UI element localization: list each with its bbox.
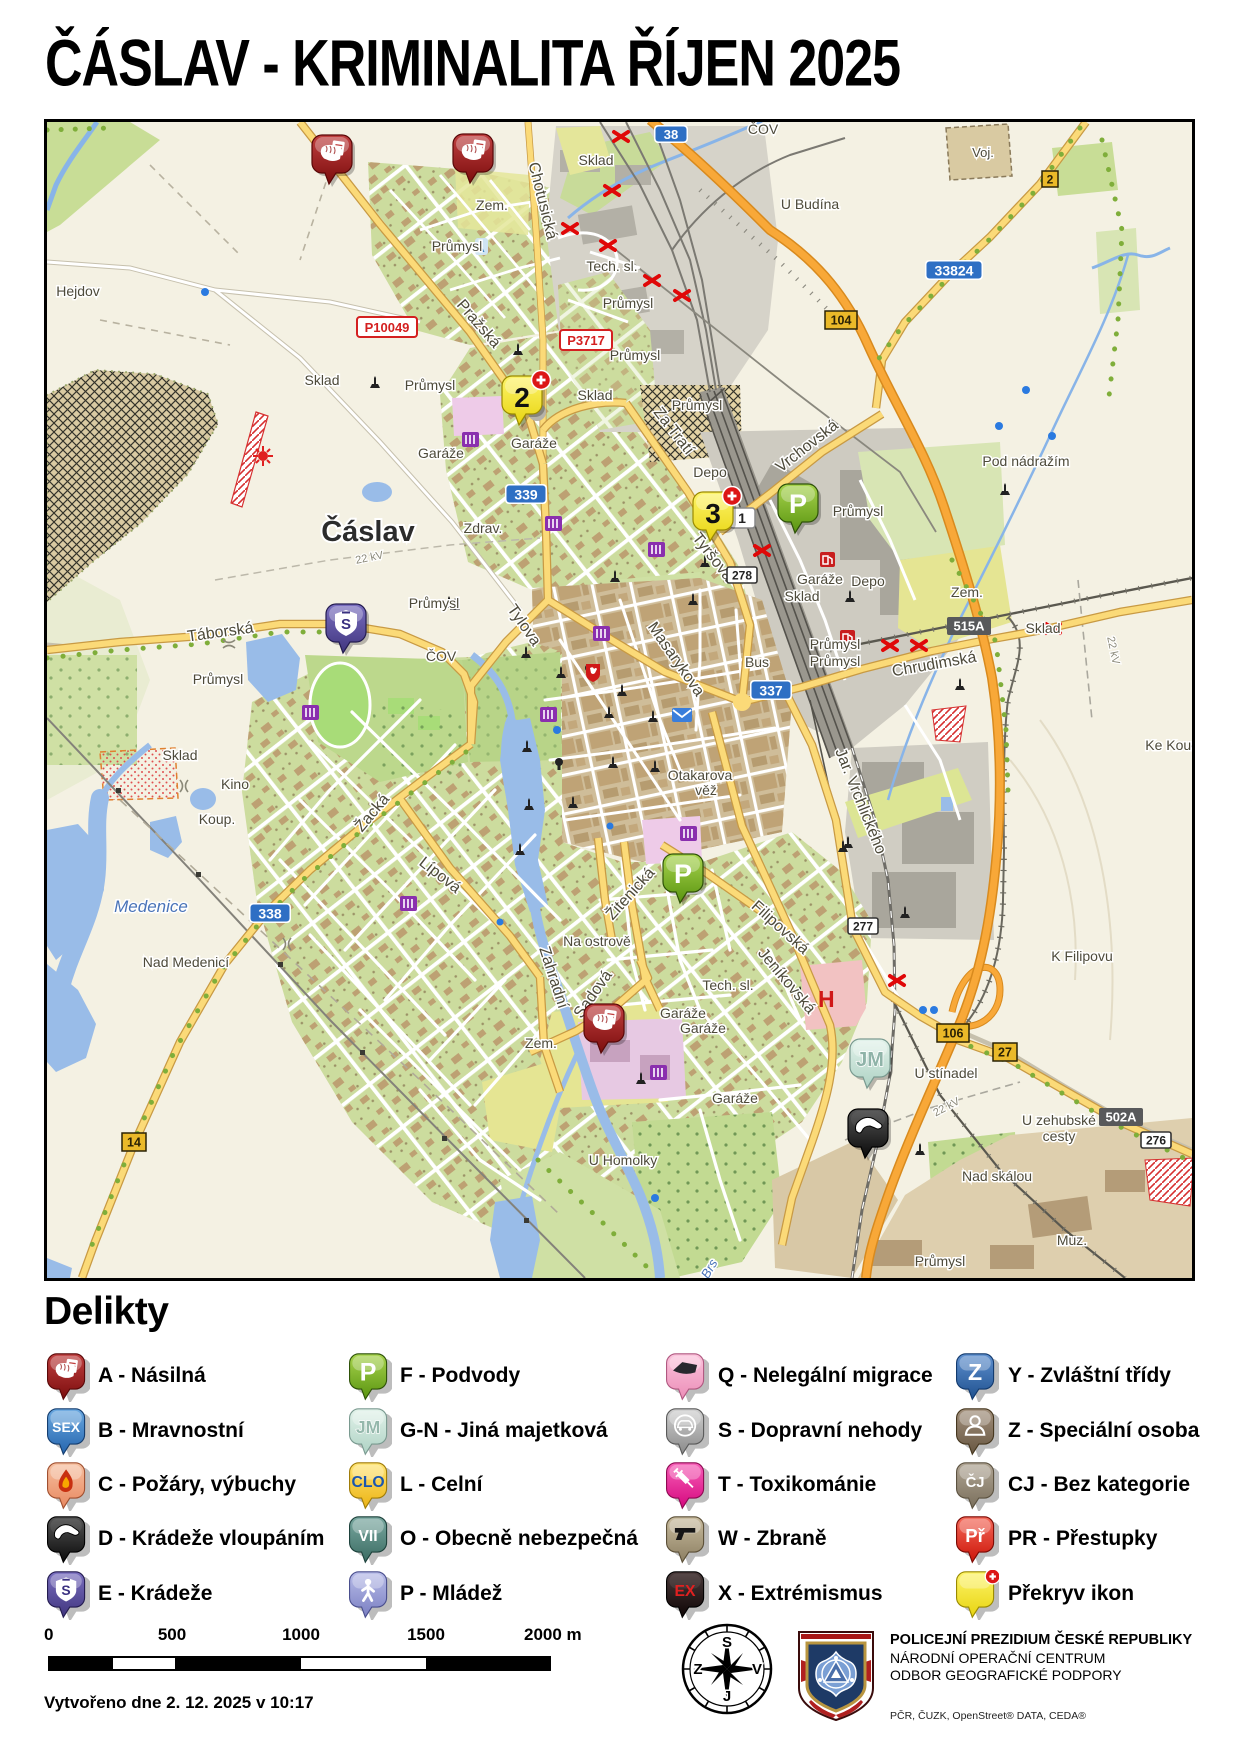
svg-text:VII: VII [358,1528,377,1545]
svg-text:Průmysl: Průmysl [810,653,861,669]
svg-text:Garáže: Garáže [511,435,557,451]
svg-text:Zdrav.: Zdrav. [464,520,503,536]
svg-text:Garáže: Garáže [712,1090,758,1106]
svg-text:P3717: P3717 [567,333,605,348]
svg-text:33824: 33824 [935,263,974,279]
svg-text:ČOV: ČOV [426,648,457,664]
svg-text:Hejdov: Hejdov [56,283,100,299]
svg-text:338: 338 [258,906,282,922]
svg-text:U Homolky: U Homolky [589,1152,657,1168]
svg-text:515A: 515A [953,619,985,634]
svg-text:S: S [722,1634,732,1651]
svg-text:Průmysl: Průmysl [672,397,723,413]
svg-text:502A: 502A [1105,1110,1137,1125]
svg-text:Sklad: Sklad [784,588,819,604]
svg-text:Z: Z [968,1359,982,1385]
svg-text:Čáslav: Čáslav [321,514,415,548]
svg-text:38: 38 [664,127,678,142]
svg-text:Muz.: Muz. [1057,1232,1087,1248]
svg-text:339: 339 [514,487,538,503]
svg-text:Průmysl: Průmysl [193,671,244,687]
svg-text:EX: EX [675,1583,696,1600]
svg-text:276: 276 [1146,1134,1166,1148]
svg-text:věž: věž [695,782,717,798]
svg-text:Depo: Depo [693,464,727,480]
svg-text:Garáže: Garáže [418,445,464,461]
svg-text:Nad skálou: Nad skálou [962,1168,1032,1184]
svg-text:Průmysl: Průmysl [810,636,861,652]
svg-text:P: P [674,859,692,889]
svg-text:Medenice: Medenice [114,897,188,916]
svg-text:Garáže: Garáže [660,1005,706,1021]
svg-text:Bus: Bus [745,654,769,670]
svg-text:JM: JM [856,1049,884,1071]
svg-text:2: 2 [514,382,530,413]
svg-text:337: 337 [759,683,783,699]
svg-text:14: 14 [127,1136,141,1150]
svg-text:Nad Medenicí: Nad Medenicí [143,954,229,970]
svg-text:Koup.: Koup. [199,811,236,827]
svg-text:Sklad: Sklad [577,387,612,403]
svg-text:278: 278 [732,569,752,583]
svg-text:Zem.: Zem. [525,1035,557,1051]
svg-text:K Filipovu: K Filipovu [1051,948,1112,964]
svg-text:104: 104 [831,314,852,328]
svg-text:Zem.: Zem. [476,197,508,213]
svg-text:Sklad: Sklad [1025,620,1060,636]
svg-text:277: 277 [853,920,873,934]
svg-text:Sklad: Sklad [162,747,197,763]
svg-text:Zem.: Zem. [951,584,983,600]
svg-text:Z: Z [693,1661,702,1678]
svg-text:Na ostrově: Na ostrově [563,933,631,949]
svg-text:27: 27 [998,1046,1012,1060]
svg-text:U stínadel: U stínadel [914,1065,977,1081]
svg-text:2: 2 [1047,173,1054,187]
svg-text:Průmysl: Průmysl [833,503,884,519]
svg-text:U Budína: U Budína [781,196,840,212]
svg-text:Př: Př [965,1525,985,1546]
svg-text:JM: JM [356,1417,380,1437]
svg-text:Pod nádražím: Pod nádražím [982,453,1069,469]
svg-text:V: V [752,1661,762,1678]
svg-text:Ke Koudelov: Ke Koudelov [1145,737,1192,753]
svg-text:SEX: SEX [52,1419,81,1435]
svg-text:Depo: Depo [851,573,885,589]
svg-text:J: J [723,1688,731,1705]
svg-text:Sklad: Sklad [578,152,613,168]
svg-text:Průmysl: Průmysl [610,347,661,363]
svg-text:Průmysl: Průmysl [603,295,654,311]
svg-text:P: P [360,1359,377,1387]
svg-text:cesty: cesty [1043,1128,1076,1144]
svg-text:U zehubské: U zehubské [1022,1112,1096,1128]
svg-text:Průmysl: Průmysl [915,1253,966,1269]
svg-text:3: 3 [705,498,721,529]
svg-text:ČJ: ČJ [966,1473,985,1491]
svg-text:106: 106 [943,1027,964,1041]
svg-text:1: 1 [738,510,746,526]
svg-text:CLO: CLO [351,1474,384,1491]
svg-text:P: P [789,489,807,519]
svg-text:Průmysl: Průmysl [405,377,456,393]
svg-text:Garáže: Garáže [797,571,843,587]
svg-text:Průmysl: Průmysl [409,595,460,611]
svg-text:H: H [818,986,835,1012]
svg-text:Tech. sl.: Tech. sl. [586,258,637,274]
svg-text:Otakarova: Otakarova [668,767,733,783]
svg-text:Průmysl: Průmysl [432,238,483,254]
svg-text:Garáže: Garáže [680,1020,726,1036]
svg-text:S: S [61,1582,70,1598]
svg-text:Voj.: Voj. [972,145,994,160]
svg-text:Tech. sl.: Tech. sl. [702,977,753,993]
svg-text:Sklad: Sklad [304,372,339,388]
svg-text:ČOV: ČOV [748,122,779,137]
svg-text:P10049: P10049 [365,320,410,335]
svg-text:S: S [341,616,351,633]
svg-text:Kino: Kino [221,776,249,792]
